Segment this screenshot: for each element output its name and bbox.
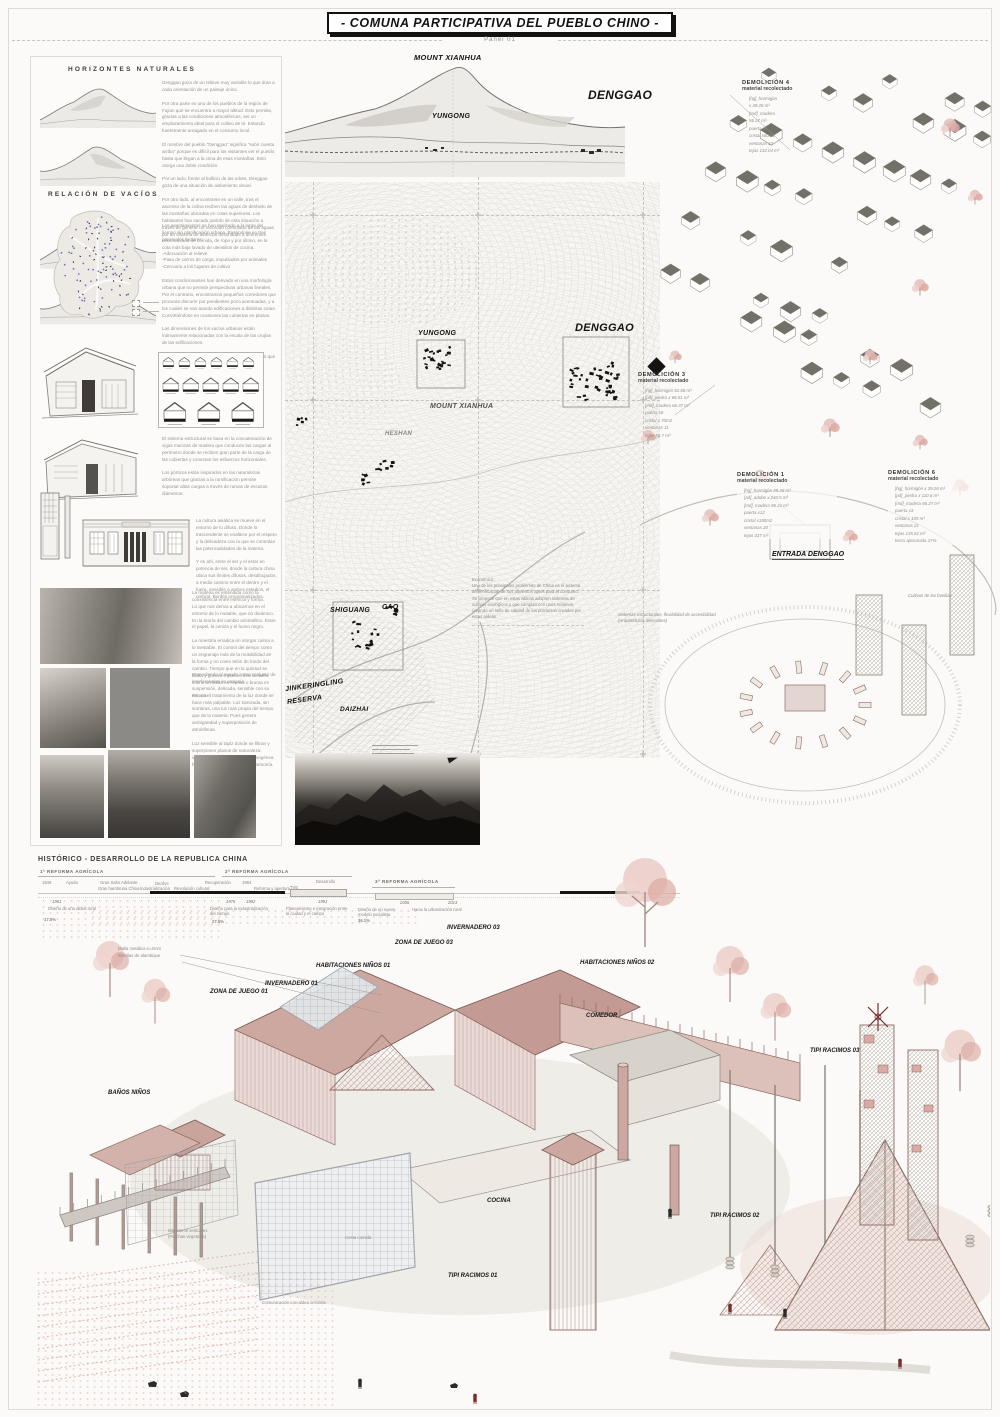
era1-bracket — [38, 876, 215, 877]
tl-recuperacion: Recuperación — [205, 880, 231, 885]
demolicion-6-items: [hg]_hormigón x 39.26 m³ [pd]_piedra x 1… — [888, 485, 988, 545]
map-label-mount-xianhua: MOUNT XIANHUA — [430, 403, 493, 410]
legend-swatch-1 — [132, 300, 140, 307]
tl-tve: TVE — [290, 885, 298, 890]
tl-1949: 1949 — [42, 880, 51, 885]
timeline-title: HISTÓRICO - DESARROLLO DE LA REPUBLICA C… — [38, 856, 248, 863]
map-label-shiguang: SHIGUANG — [330, 607, 370, 614]
legend-swatch-2 — [132, 309, 140, 316]
photo-interior — [40, 588, 182, 664]
header-divider-right — [558, 40, 988, 41]
vacios-text: Los asentamientos se han realizado a lo … — [162, 223, 276, 368]
field-dots — [35, 1270, 335, 1410]
entrada-denggao-label: ENTRADA DENGGAO — [772, 551, 844, 560]
map-label-heshan: HESHAN — [385, 431, 412, 437]
timeline-box-segment-2 — [375, 893, 454, 900]
truss-matrix — [158, 352, 264, 428]
demolicion-1-subtitle: material recolectado — [737, 478, 837, 484]
map-label-cao: CAO — [382, 604, 398, 611]
demolicion-4-subtitle: material recolectado — [742, 86, 842, 92]
tl-gran-salto: Gran Salto Adelante — [100, 880, 137, 885]
label-zona-juego-03: ZONA DE JUEGO 03 — [395, 940, 453, 946]
tl-1991: 1991 — [318, 899, 327, 904]
village-isometric — [620, 55, 1000, 855]
economico-note: Económico. Uno de los principales proble… — [472, 577, 584, 626]
annotation-cesta: Cesta comida — [345, 1235, 371, 1241]
header-divider-left — [12, 40, 442, 41]
label-banos-ninos: BAÑOS NIÑOS — [108, 1090, 150, 1096]
vacios-legend — [132, 300, 159, 316]
construction-line-v2 — [478, 177, 479, 758]
timeline-era3: 3ª REFORMA AGRÍCOLA — [375, 879, 439, 884]
label-invernadero-03: INVERNADERO 03 — [447, 925, 500, 931]
label-hab-ninos-02: HABITACIONES NIÑOS 02 — [580, 960, 654, 966]
cultura-text-1: La cultura asiática se mueve en el entor… — [196, 518, 278, 601]
annotation-malla: Malla metálica e=2mm — [118, 946, 161, 952]
demolicion-3-subtitle: material recolectado — [638, 378, 738, 384]
legend-label-line-2 — [143, 311, 159, 312]
demolicion-4-items: [hg]_hormigón x 49.28 m³ [md]_madera 56.… — [742, 95, 842, 155]
panorama-label-yungong: YUNGONG — [432, 113, 470, 120]
timeline-box-segment-1 — [290, 889, 347, 897]
demolicion-3-items: [hg]_hormigón 82.68 m³ [pd]_piedra x 68.… — [638, 387, 738, 439]
cultivos-note: Cultivos de las familias — [908, 593, 998, 599]
timeline-black-segment-1 — [150, 891, 285, 894]
photo-annotations — [372, 742, 418, 757]
tl-1964: 1964 — [242, 880, 251, 885]
house-sketch-1 — [42, 342, 138, 428]
label-zona-juego-01: ZONA DE JUEGO 01 — [210, 989, 268, 995]
tl-ayuda: Ayuda — [66, 880, 78, 885]
era3-bracket — [372, 887, 455, 888]
label-cocina: COCINA — [487, 1198, 511, 1204]
label-hab-ninos-01: HABITACIONES NIÑOS 01 — [316, 963, 390, 969]
mountain-photo — [295, 753, 480, 845]
tl-1976: 1976 — [226, 899, 235, 904]
map-label-daizhai: DAIZHAI — [340, 706, 368, 713]
construction-line-v1 — [313, 182, 314, 758]
demolicion-6-note: DEMOLICIÓN 6 material recolectado [hg]_h… — [888, 470, 988, 545]
estructura-text: El sistema estructural se basa en la con… — [162, 436, 274, 498]
tl-reforma: Reforma y apertura — [254, 886, 290, 891]
poster-panel: - COMUNA PARTICIPATIVA DEL PUEBLO CHINO … — [0, 0, 1000, 1417]
construction-line-h2 — [285, 400, 660, 401]
photo-temple — [108, 750, 190, 838]
cultura-text-3: Entendiendo el mundo como conjunto de in… — [192, 672, 276, 768]
label-invernadero-01: INVERNADERO 01 — [265, 981, 318, 987]
tl-2006: 2006 — [400, 900, 409, 905]
label-tipi-02: TIPI RACIMOS 02 — [710, 1213, 759, 1219]
map-label-yungong: YUNGONG — [418, 330, 456, 337]
demolicion-1-items: [hg]_hormigón 99.28 m³ [ad]_adobe x 240.… — [737, 487, 837, 539]
facade-elevation — [82, 512, 190, 570]
construction-line-h1 — [285, 215, 660, 216]
tl-industrializacion: Industrialización — [140, 886, 170, 891]
tl-revolucion: Revolución cultural — [174, 886, 209, 891]
label-tipi-03: TIPI RACIMOS 03 — [810, 1048, 859, 1054]
demolicion-1-note: DEMOLICIÓN 1 material recolectado [hg]_h… — [737, 472, 837, 539]
panorama-label-mount-xianhua: MOUNT XIANHUA — [414, 53, 482, 62]
demolicion-3-note: DEMOLICIÓN 3 material recolectado [hg]_h… — [638, 372, 738, 439]
annotation-botellas: Botellas de alambique — [118, 953, 160, 959]
photo-house — [40, 668, 106, 748]
tl-1982: 1982 — [246, 899, 255, 904]
tl-desarrollo: Desarrollo — [316, 879, 335, 884]
label-comedor: COMEDOR — [586, 1013, 617, 1019]
vacios-title: RELACIÓN DE VACÍOS — [48, 191, 159, 198]
annotation-maceteros: Maceteros verticales (Perchas vegetales) — [168, 1228, 207, 1240]
legend-label-line-1 — [143, 302, 159, 303]
page-title: - COMUNA PARTICIPATIVA DEL PUEBLO CHINO … — [327, 12, 673, 34]
era2-bracket — [222, 876, 352, 877]
demolicion-4-note: DEMOLICIÓN 4 material recolectado [hg]_h… — [742, 80, 842, 155]
header: - COMUNA PARTICIPATIVA DEL PUEBLO CHINO … — [0, 12, 1000, 34]
door-drawing — [40, 492, 76, 564]
timeline-era1: 1ª REFORMA AGRÍCOLA — [40, 869, 104, 874]
tl-2013: 2013 — [448, 900, 457, 905]
tl-hambruna: Gran hambruna China — [98, 886, 139, 891]
sistemas-note: Sistemas estructurales, flexibilidad de … — [618, 612, 718, 624]
photo-garden — [194, 755, 256, 838]
demolicion-6-subtitle: material recolectado — [888, 476, 988, 482]
horizontes-title: HORIZONTES NATURALES — [68, 66, 196, 73]
label-tipi-01: TIPI RACIMOS 01 — [448, 1273, 497, 1279]
photo-alley — [40, 755, 104, 838]
timeline-era2: 2ª REFORMA AGRÍCOLA — [225, 869, 289, 874]
photo-wall — [110, 668, 170, 748]
topo-map-overlay — [285, 182, 660, 758]
